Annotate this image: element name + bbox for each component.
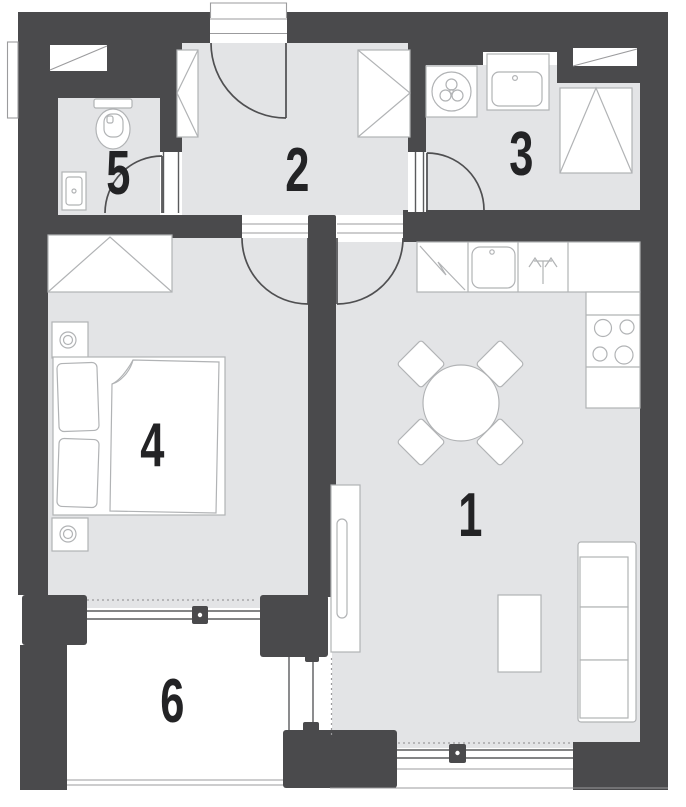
- living-window: [397, 750, 573, 758]
- room-label-living-room: 1: [458, 485, 481, 547]
- utility-wardrobe-icon: [560, 88, 632, 173]
- tv-icon: [337, 519, 347, 618]
- balcony-railing: [67, 780, 283, 785]
- bed-blanket: [110, 360, 219, 513]
- tv-cabinet-icon: [331, 485, 360, 652]
- wardrobe-right-icon: [358, 50, 410, 137]
- floor-plan: 1 2 3 4 5 6: [0, 0, 686, 807]
- floor-plan-drawing: [0, 0, 686, 807]
- balcony-side-window: [289, 657, 313, 730]
- dining-table-icon: [423, 365, 499, 441]
- room-label-balcony: 6: [160, 671, 183, 733]
- sofa-icon: [578, 542, 636, 722]
- wardrobe-left-icon: [177, 50, 198, 137]
- exterior-wall-tick: [8, 42, 19, 118]
- living-door-opening: [337, 215, 403, 238]
- washbasin-icon: [62, 172, 86, 210]
- room-label-hallway: 2: [285, 140, 308, 202]
- washing-machine-icon: [426, 66, 477, 117]
- nightstand-bottom-icon: [52, 518, 88, 551]
- utility-sink-icon: [483, 52, 557, 110]
- room-label-bathroom: 5: [106, 143, 129, 205]
- room-label-utility-room: 3: [509, 124, 532, 186]
- bed-icon: [53, 357, 225, 515]
- nightstand-top-icon: [52, 322, 88, 358]
- bedroom-window: [87, 611, 260, 619]
- room-label-bedroom: 4: [140, 415, 163, 477]
- coffee-table-icon: [498, 595, 541, 672]
- bedroom-wardrobe-icon: [48, 235, 172, 292]
- bedroom-door-opening: [242, 215, 308, 238]
- kitchen-sink-icon: [472, 247, 515, 288]
- entry-opening: [210, 12, 287, 43]
